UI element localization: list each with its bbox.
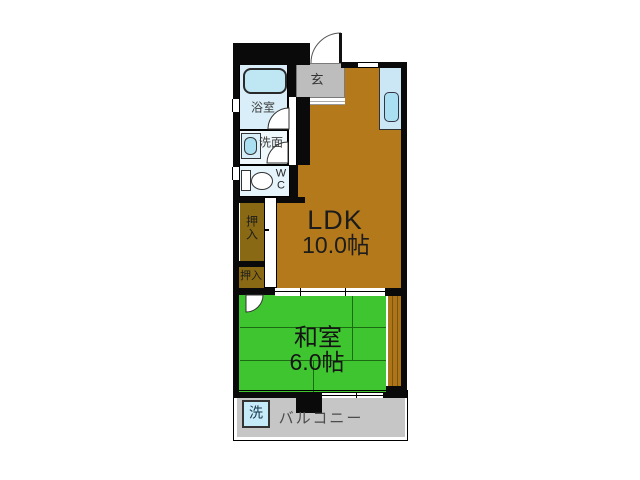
bathroom-label: 浴室: [251, 102, 275, 115]
laundry-label: 洗: [249, 406, 263, 421]
japanese-room-label: 和室: [294, 325, 342, 350]
ldk-size-label: 10.0帖: [302, 233, 370, 257]
balcony-label: バルコニー: [279, 411, 364, 427]
closet-upper-label-line2: 入: [246, 228, 258, 241]
entrance-label: 玄: [310, 73, 323, 87]
toilet-label-w: W: [276, 168, 286, 180]
washroom-label: 洗面: [259, 137, 283, 150]
entrance-door-arc: [311, 33, 341, 63]
japanese-room-size-label: 6.0帖: [290, 350, 345, 374]
floor-plan: 浴室 洗面 W C 押 入 押入 玄 LDK 10.0帖 和室 6.0帖 洗 バ…: [0, 0, 640, 480]
closet-upper-label-line1: 押: [246, 215, 258, 228]
closet-lower-label: 押入: [240, 271, 262, 283]
toilet-label: W C: [276, 168, 286, 191]
closet-upper-label: 押 入: [246, 215, 258, 240]
ldk-label: LDK: [307, 206, 363, 234]
toilet-label-c: C: [276, 180, 286, 192]
entrance-door-leaf: [339, 33, 342, 63]
japanese-room-door-swing: [246, 295, 263, 312]
